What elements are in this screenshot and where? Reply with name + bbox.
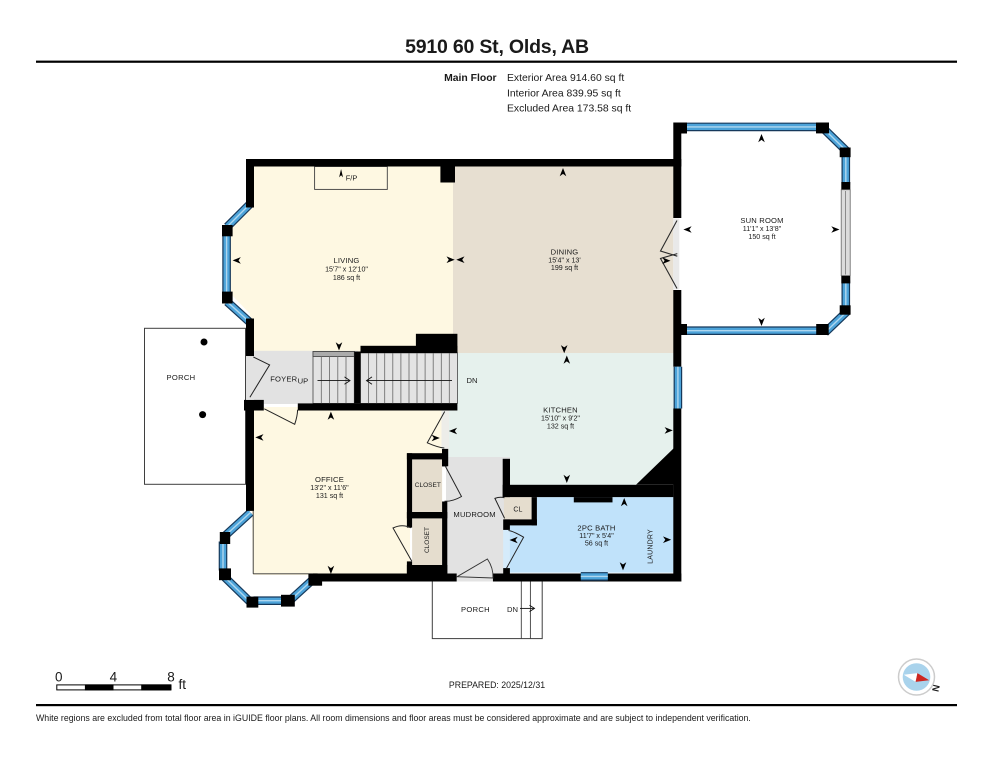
svg-text:Main Floor: Main Floor	[444, 73, 497, 84]
svg-text:0: 0	[55, 670, 63, 685]
svg-text:4: 4	[110, 670, 118, 685]
svg-text:UP: UP	[298, 377, 309, 386]
svg-text:186 sq ft: 186 sq ft	[333, 274, 360, 282]
svg-text:F/P: F/P	[346, 174, 358, 183]
svg-text:15'7" x 12'10": 15'7" x 12'10"	[325, 266, 368, 274]
svg-text:PORCH: PORCH	[461, 605, 490, 614]
svg-text:11'1" x 13'8": 11'1" x 13'8"	[743, 225, 782, 233]
svg-text:199 sq ft: 199 sq ft	[551, 264, 578, 272]
svg-text:CLOSET: CLOSET	[424, 527, 431, 553]
svg-text:DN: DN	[507, 605, 518, 614]
svg-text:MUDROOM: MUDROOM	[453, 510, 495, 519]
svg-text:SUN ROOM: SUN ROOM	[740, 216, 783, 225]
svg-text:ft: ft	[179, 677, 187, 692]
svg-text:N: N	[929, 683, 941, 692]
svg-text:Interior Area 839.95 sq ft: Interior Area 839.95 sq ft	[507, 88, 621, 99]
svg-text:5910 60 St, Olds, AB: 5910 60 St, Olds, AB	[405, 36, 589, 58]
svg-text:OFFICE: OFFICE	[315, 475, 344, 484]
svg-text:13'2" x 11'6": 13'2" x 11'6"	[310, 484, 349, 492]
svg-text:KITCHEN: KITCHEN	[543, 406, 578, 415]
svg-text:132 sq ft: 132 sq ft	[547, 423, 574, 431]
svg-text:15'10" x 9'2": 15'10" x 9'2"	[541, 415, 580, 423]
svg-text:131 sq ft: 131 sq ft	[316, 492, 343, 500]
svg-text:White regions are excluded fro: White regions are excluded from total fl…	[36, 713, 751, 723]
svg-text:Exterior Area 914.60 sq ft: Exterior Area 914.60 sq ft	[507, 73, 624, 84]
svg-text:DINING: DINING	[551, 248, 579, 257]
svg-text:PREPARED: 2025/12/31: PREPARED: 2025/12/31	[449, 680, 545, 690]
svg-text:56 sq ft: 56 sq ft	[585, 539, 608, 547]
svg-text:Excluded Area 173.58 sq ft: Excluded Area 173.58 sq ft	[507, 104, 631, 115]
svg-text:8: 8	[167, 670, 175, 685]
svg-text:DN: DN	[467, 376, 478, 385]
svg-text:FOYER: FOYER	[270, 375, 297, 384]
svg-text:LIVING: LIVING	[333, 256, 359, 265]
svg-text:CL: CL	[513, 507, 522, 514]
svg-text:LAUNDRY: LAUNDRY	[648, 529, 655, 564]
svg-text:CLOSET: CLOSET	[415, 482, 441, 489]
svg-text:PORCH: PORCH	[167, 373, 196, 382]
svg-text:150 sq ft: 150 sq ft	[748, 233, 775, 241]
